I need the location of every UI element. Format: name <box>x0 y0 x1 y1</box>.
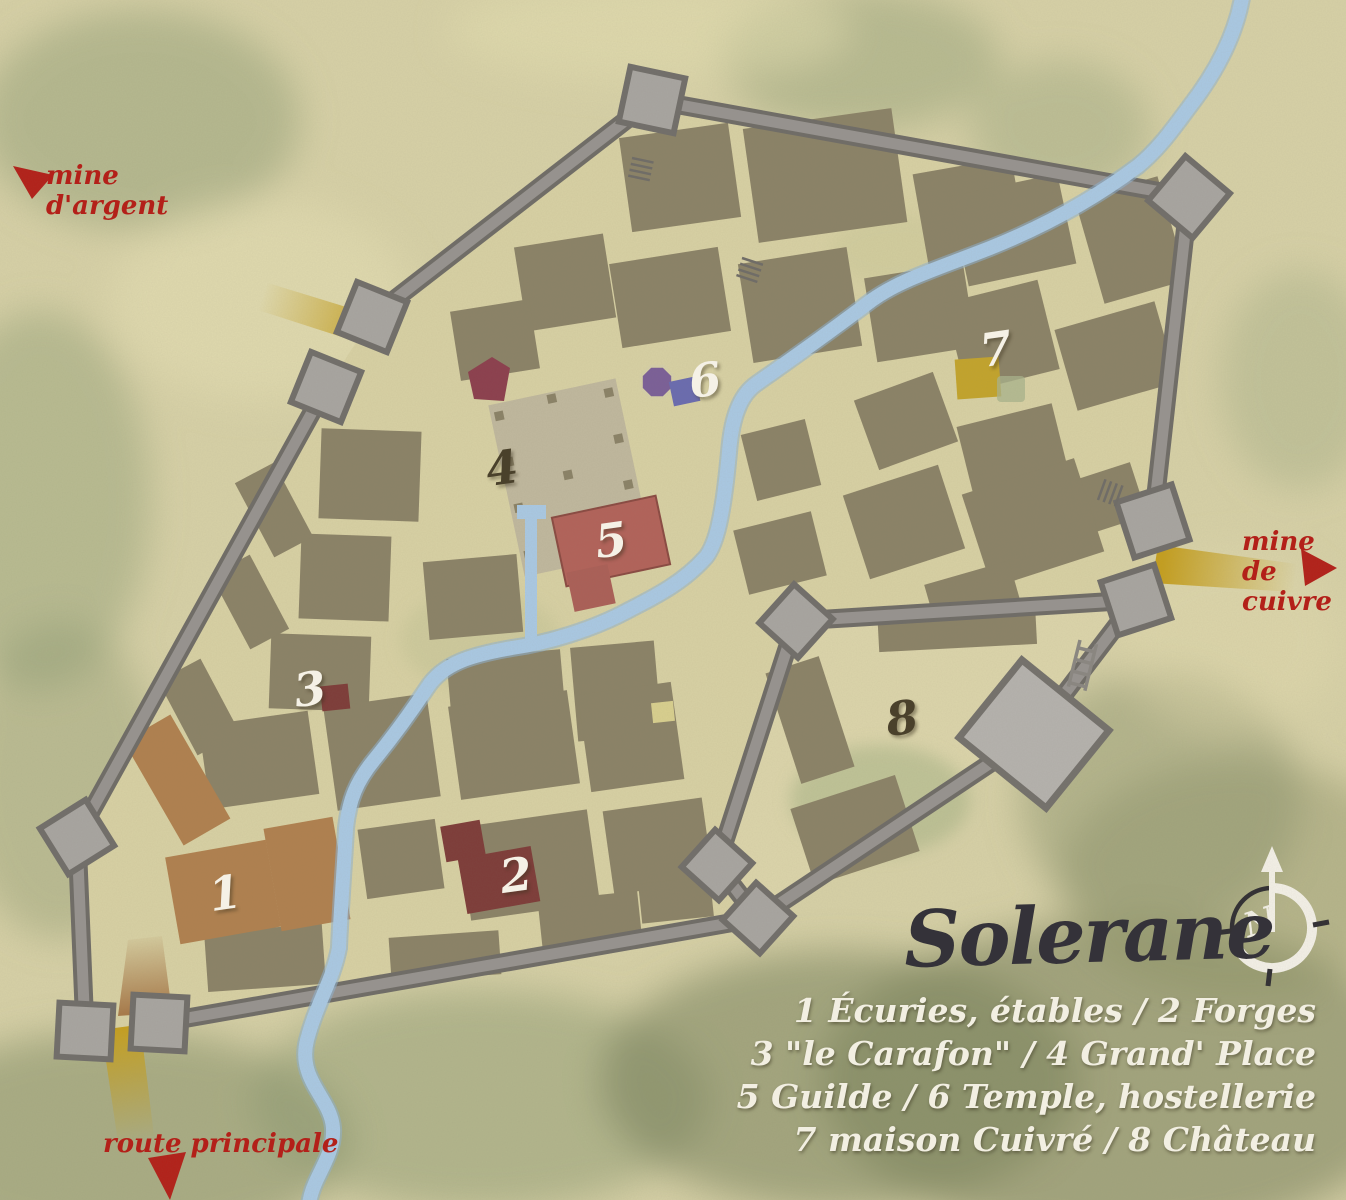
map-graphic: N <box>0 0 1346 1200</box>
town-map: N mine d'argent mine de cuivre route pri… <box>0 0 1346 1200</box>
paper-grain <box>0 0 1346 1200</box>
